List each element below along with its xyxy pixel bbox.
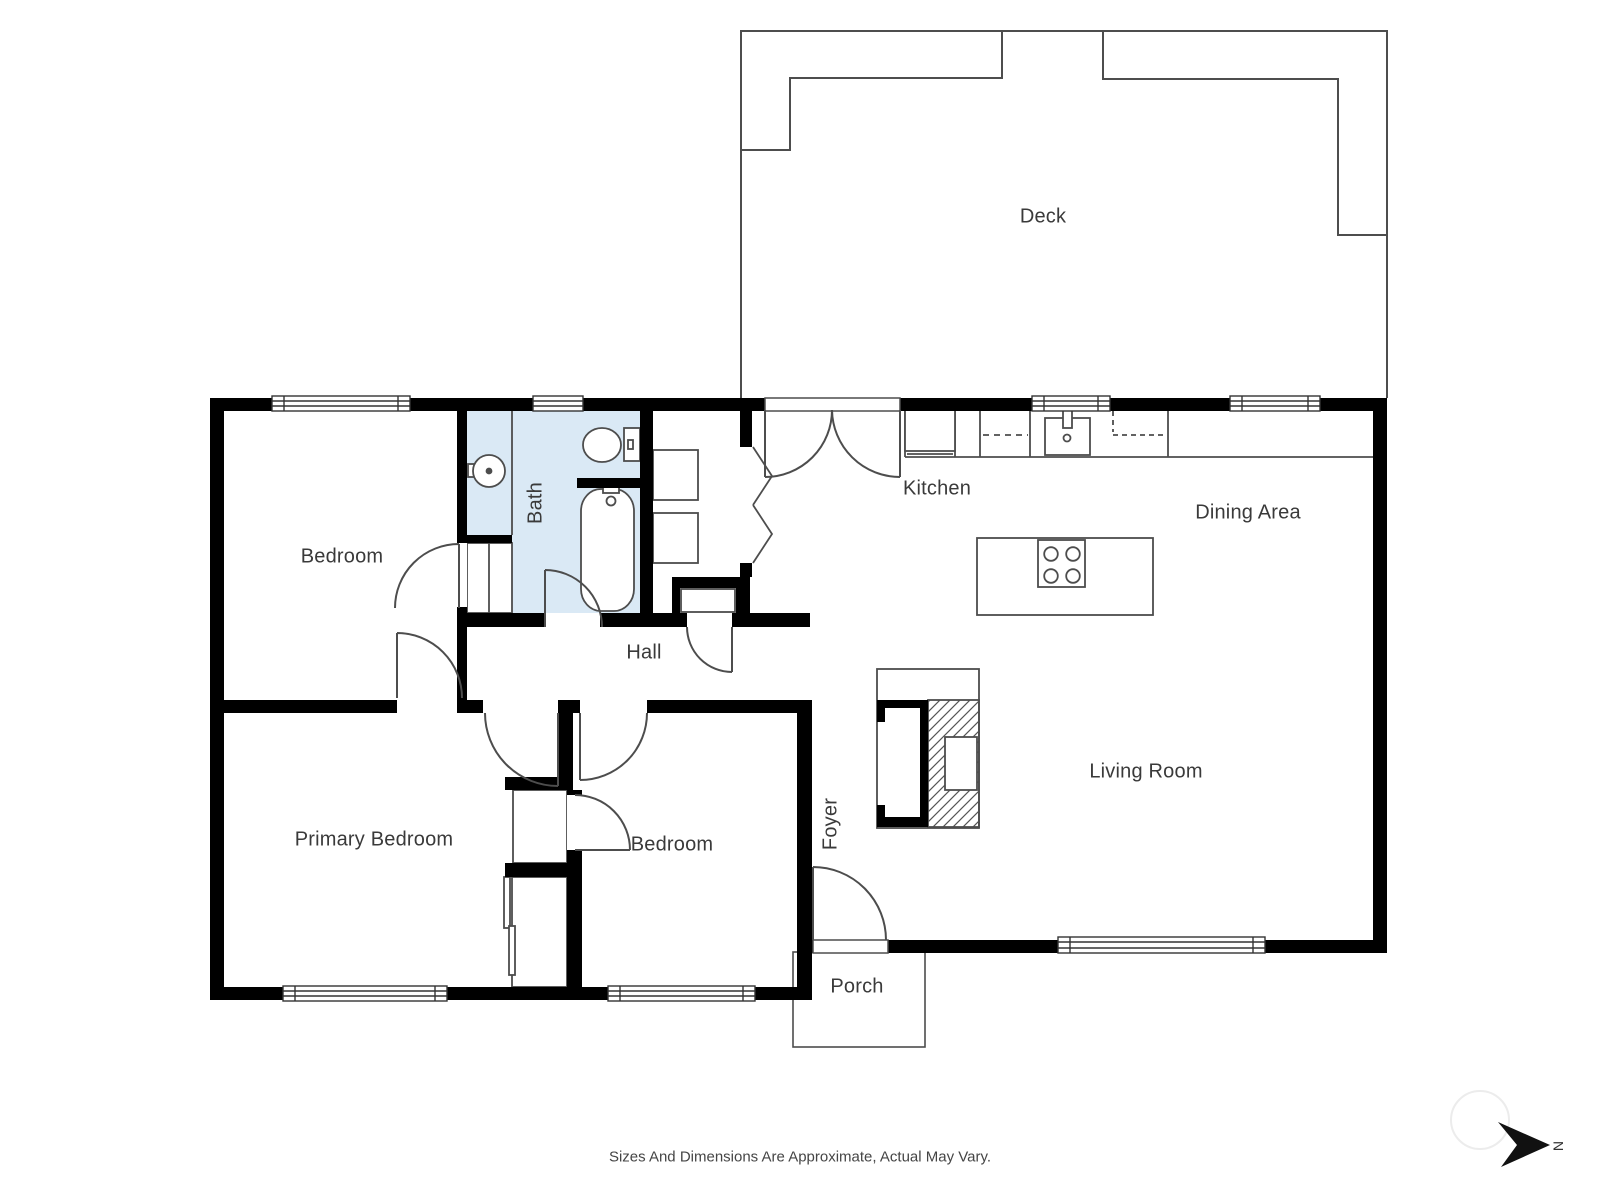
walls [210, 398, 1387, 1000]
room-label-deck: Deck [1020, 206, 1066, 229]
floor-plan-drawing: N [0, 0, 1600, 1200]
bedroom-top-door [397, 633, 462, 698]
porch-outline [793, 952, 925, 1047]
compass: N [1451, 1091, 1566, 1167]
deck-door-left [765, 410, 832, 477]
bypass-door [509, 926, 515, 975]
room-label-hall: Hall [626, 642, 661, 665]
window [283, 986, 447, 1001]
room-label-foyer: Foyer [820, 798, 843, 850]
window [272, 396, 410, 411]
bedroom-closet [467, 543, 512, 613]
north-arrow-icon [1498, 1122, 1550, 1167]
room-label-primary-bedroom: Primary Bedroom [295, 829, 454, 852]
bedroom-closet-door [395, 544, 459, 608]
room-label-bath: Bath [525, 482, 548, 524]
front-door [813, 867, 886, 940]
hall-closet [513, 790, 567, 863]
primary-closet [504, 877, 567, 987]
utility-closet-door [687, 627, 732, 672]
utility-closet [681, 589, 735, 612]
deck-door-threshold [765, 398, 900, 411]
window [608, 986, 755, 1001]
room-label-living-room: Living Room [1089, 761, 1202, 784]
window [1032, 396, 1110, 411]
fireplace [877, 669, 979, 828]
room-label-porch: Porch [830, 976, 883, 999]
deck-door-right [832, 410, 900, 477]
disclaimer-text: Sizes And Dimensions Are Approximate, Ac… [609, 1149, 991, 1166]
window [1230, 396, 1320, 411]
primary-bedroom-door [485, 713, 558, 786]
window [1058, 937, 1265, 953]
front-door-threshold [813, 940, 888, 953]
room-label-dining-area: Dining Area [1195, 502, 1301, 525]
bedroom-bottom-door [580, 713, 647, 780]
hall-closet-door [575, 795, 630, 850]
kitchen-island [977, 538, 1153, 615]
kitchen-counter [905, 408, 1373, 457]
pantry-shelves [653, 450, 698, 563]
room-label-kitchen: Kitchen [903, 478, 971, 501]
toilet [583, 428, 640, 462]
floor-plan: N Deck Kitchen Dining Area Bath Bedroom … [0, 0, 1600, 1200]
refrigerator [905, 409, 955, 451]
room-label-bedroom-bottom: Bedroom [631, 834, 714, 857]
kitchen-sink [1045, 409, 1090, 455]
bypass-door [504, 877, 510, 928]
appliance-dashed [1113, 411, 1165, 435]
north-label: N [1550, 1141, 1566, 1151]
room-label-bedroom-top: Bedroom [301, 546, 384, 569]
compass-circle [1451, 1091, 1509, 1149]
bifold-doors [753, 447, 772, 563]
window [533, 396, 583, 411]
windows [272, 396, 1320, 1001]
stove [1038, 540, 1085, 587]
